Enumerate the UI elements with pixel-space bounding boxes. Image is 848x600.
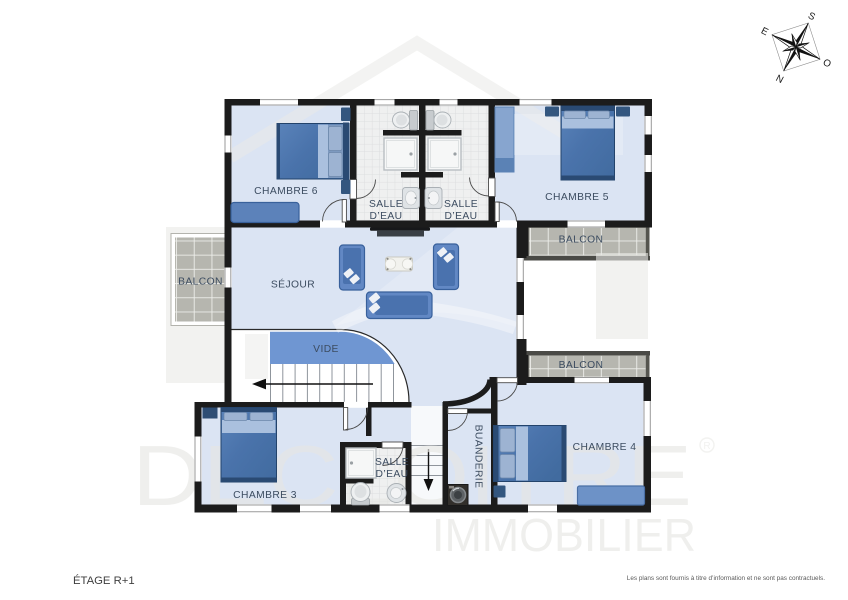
svg-text:R: R (703, 441, 710, 452)
svg-text:SALLE: SALLE (375, 457, 409, 468)
svg-text:CHAMBRE 3: CHAMBRE 3 (233, 490, 297, 501)
svg-text:BALCON: BALCON (559, 235, 604, 246)
svg-text:BUANDERIE: BUANDERIE (473, 425, 484, 489)
svg-text:BALCON: BALCON (559, 360, 604, 371)
svg-text:VIDE: VIDE (313, 344, 339, 355)
svg-text:CHAMBRE 6: CHAMBRE 6 (254, 186, 318, 197)
svg-text:D’EAU: D’EAU (445, 211, 478, 222)
svg-text:Les plans sont fournis à titre: Les plans sont fournis à titre d’informa… (627, 575, 825, 582)
svg-text:BALCON: BALCON (178, 277, 223, 288)
svg-text:D’EAU: D’EAU (376, 469, 409, 480)
svg-text:IMMOBILIER: IMMOBILIER (432, 509, 696, 561)
svg-text:SÉJOUR: SÉJOUR (271, 278, 315, 291)
svg-text:ÉTAGE R+1: ÉTAGE R+1 (73, 574, 135, 587)
svg-text:SALLE: SALLE (369, 199, 403, 210)
svg-text:CHAMBRE 5: CHAMBRE 5 (545, 192, 609, 203)
svg-text:CHAMBRE 4: CHAMBRE 4 (573, 442, 637, 453)
svg-text:D’EAU: D’EAU (370, 211, 403, 222)
svg-text:SALLE: SALLE (444, 199, 478, 210)
